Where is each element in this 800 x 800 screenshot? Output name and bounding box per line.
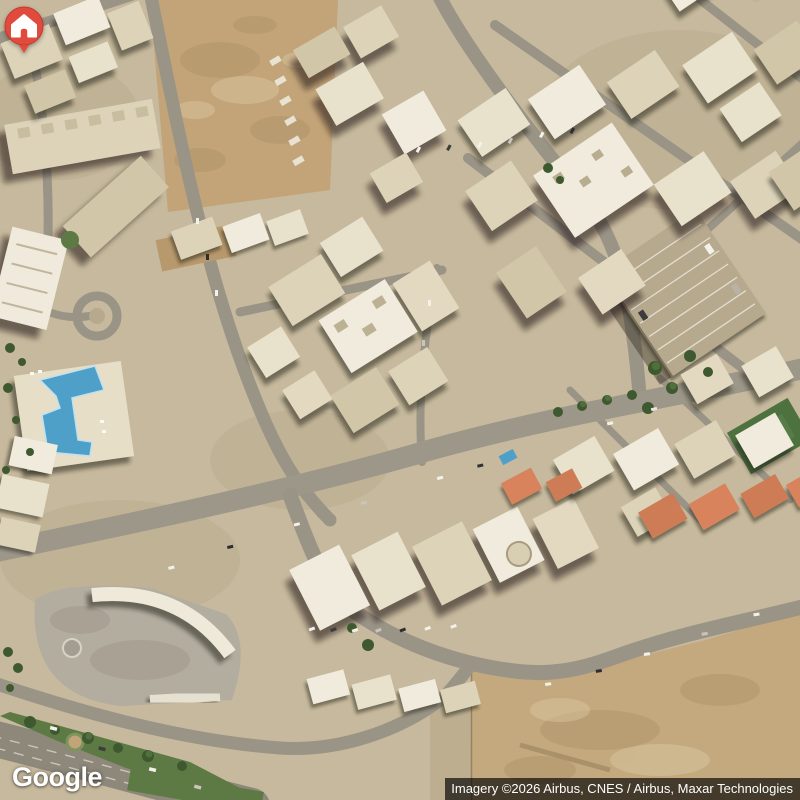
attribution-bar: Imagery ©2026 Airbus, CNES / Airbus, Max… (445, 778, 800, 800)
google-logo[interactable]: Google (12, 762, 102, 793)
satellite-map[interactable]: Google Imagery ©2026 Airbus, CNES / Airb… (0, 0, 800, 800)
home-marker[interactable] (0, 0, 48, 56)
satellite-imagery (0, 0, 800, 800)
attribution-text: Imagery ©2026 Airbus, CNES / Airbus, Max… (451, 781, 793, 796)
